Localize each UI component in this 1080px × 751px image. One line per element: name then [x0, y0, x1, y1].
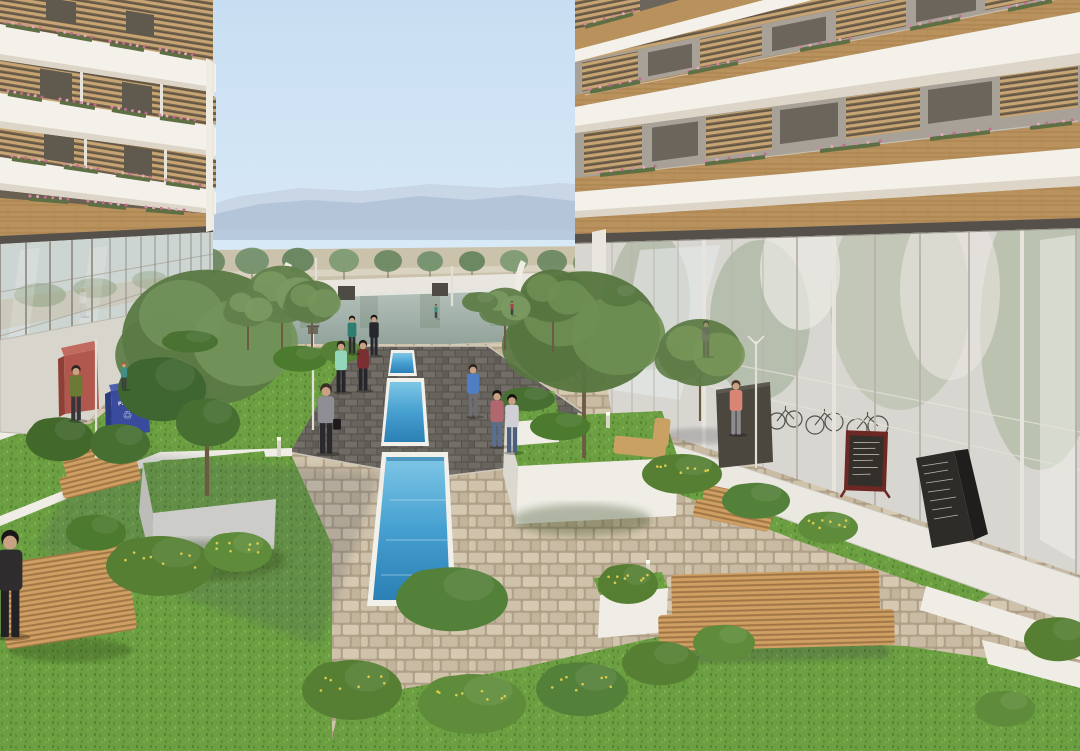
shrub	[975, 691, 1035, 727]
bollard-light	[606, 412, 610, 428]
shrub	[418, 674, 526, 734]
scene-canvas: PAPER ♲	[0, 0, 1080, 751]
shrub	[66, 515, 126, 551]
shrub	[722, 483, 790, 519]
courtyard-rendering: PAPER ♲	[0, 0, 1080, 751]
bollard-light	[277, 437, 281, 457]
shrub	[302, 660, 402, 720]
shrub	[26, 417, 94, 461]
storefront-kiosk-panel	[716, 382, 773, 468]
garden-bench	[657, 569, 895, 651]
shrub	[462, 292, 498, 312]
menu-chalkboard-red	[841, 430, 892, 499]
shrub	[204, 532, 272, 572]
shrub	[162, 331, 218, 353]
shrub	[798, 512, 858, 544]
shrub	[536, 662, 628, 716]
shrub	[176, 398, 240, 446]
shrub	[622, 641, 698, 685]
shrub	[273, 346, 327, 372]
pond-seat-cube	[432, 283, 448, 296]
shrub	[642, 454, 722, 494]
shrub	[600, 285, 640, 307]
shrub	[598, 564, 658, 604]
shrub	[106, 536, 214, 596]
shrub	[530, 412, 590, 440]
shrub	[693, 625, 755, 661]
shrub	[90, 424, 150, 464]
shrub	[396, 567, 508, 631]
pond-seat-cube	[338, 286, 355, 300]
street-lamp	[451, 266, 453, 306]
